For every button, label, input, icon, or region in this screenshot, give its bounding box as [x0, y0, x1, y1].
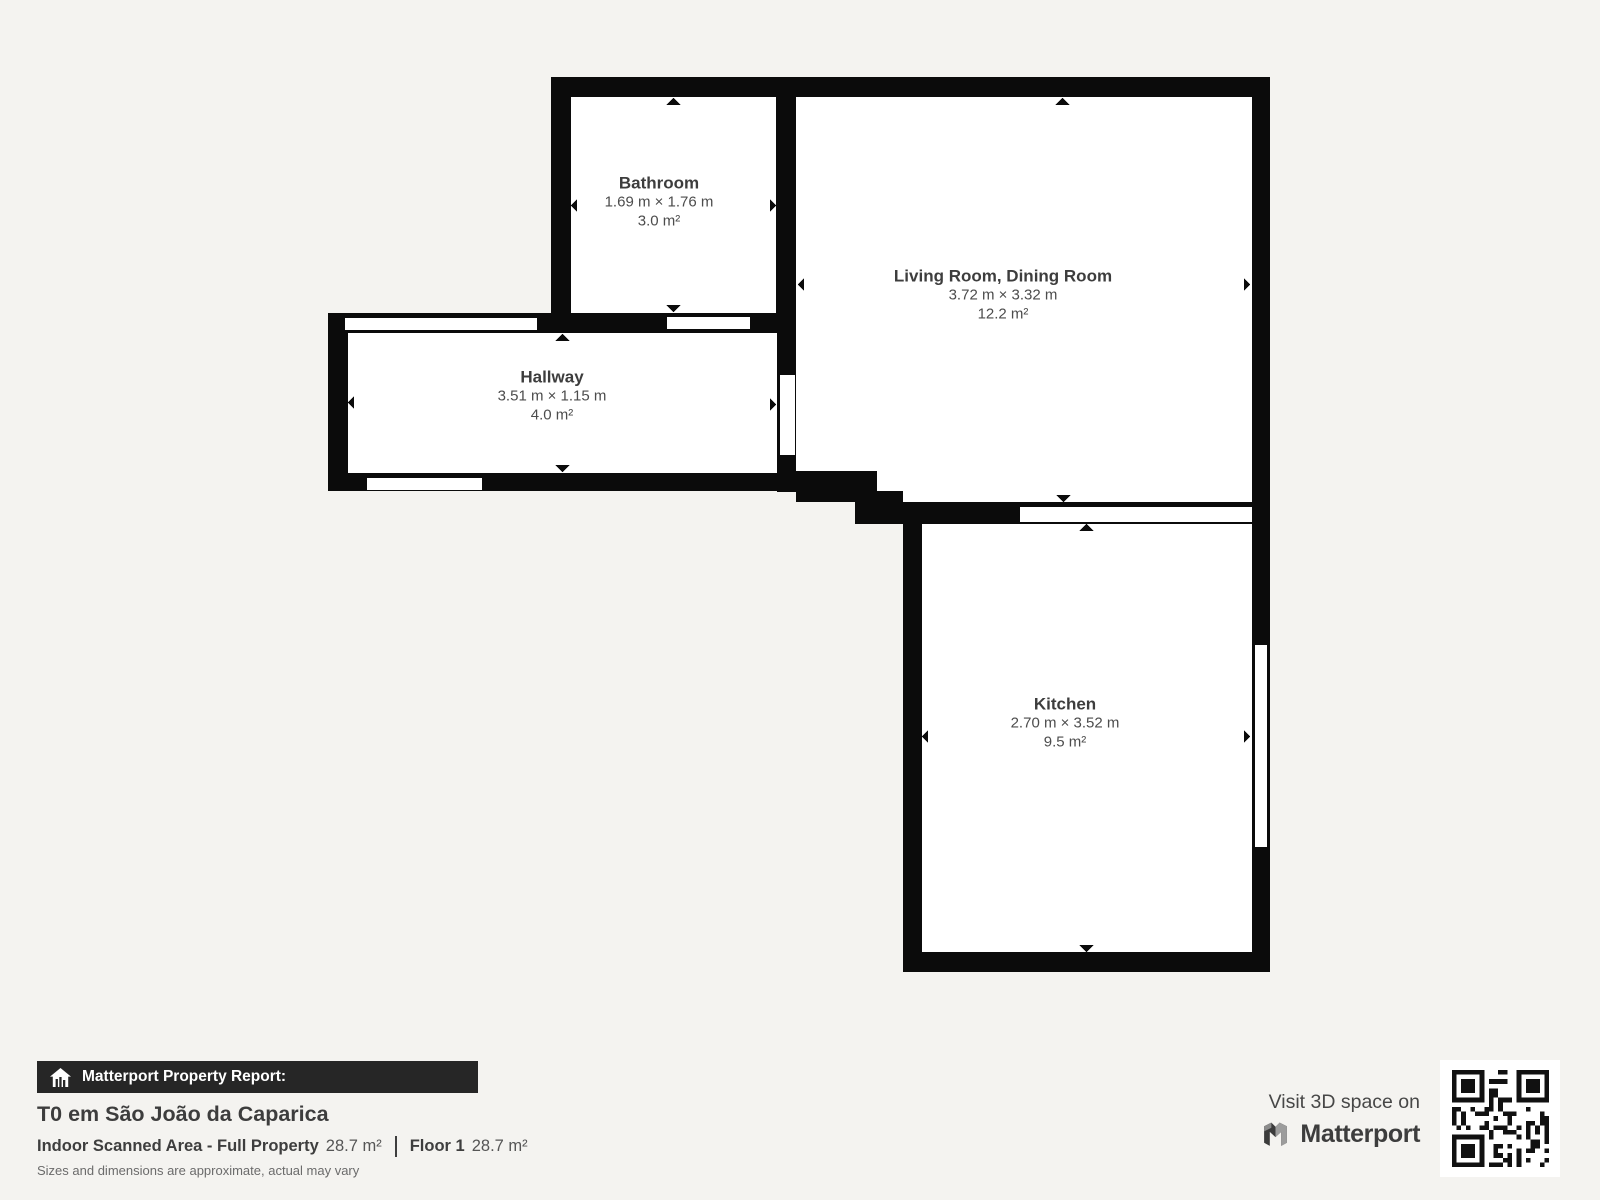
wall-kitchen-bottom	[903, 952, 1270, 972]
floor-value: 28.7 m²	[472, 1137, 528, 1156]
wall-top	[551, 77, 1270, 97]
room-floors	[348, 97, 1252, 952]
room-area: 3.0 m²	[605, 212, 714, 231]
kitchen-label: Kitchen 2.70 m × 3.52 m 9.5 m²	[1011, 695, 1120, 752]
room-name: Bathroom	[605, 174, 714, 193]
house-chart-icon	[50, 1068, 71, 1087]
room-dimensions: 2.70 m × 3.52 m	[1011, 714, 1120, 733]
floor-label: Floor 1	[410, 1137, 465, 1156]
matterport-wordmark: Matterport	[1300, 1120, 1420, 1149]
opening-hallway-bottom	[367, 478, 482, 490]
room-dimensions: 3.51 m × 1.15 m	[498, 387, 607, 406]
room-name: Hallway	[498, 368, 607, 387]
wall-kitchen-left	[903, 524, 922, 972]
matterport-logo-row: Matterport	[1261, 1120, 1420, 1149]
room-name: Kitchen	[1011, 695, 1120, 714]
report-badge-bar: Matterport Property Report:	[37, 1061, 478, 1093]
opening-living-kitchen	[1020, 507, 1252, 522]
opening-kitchen-window	[1255, 645, 1267, 847]
visit-3d-text: Visit 3D space on	[1261, 1091, 1420, 1114]
disclaimer-text: Sizes and dimensions are approximate, ac…	[37, 1163, 359, 1178]
bathroom-label: Bathroom 1.69 m × 1.76 m 3.0 m²	[605, 174, 714, 231]
floor-plan-page: Bathroom 1.69 m × 1.76 m 3.0 m² Living R…	[0, 0, 1600, 1200]
hallway-label: Hallway 3.51 m × 1.15 m 4.0 m²	[498, 368, 607, 425]
floor-plan-svg	[0, 0, 1600, 1200]
living-room-label: Living Room, Dining Room 3.72 m × 3.32 m…	[894, 267, 1112, 324]
room-dimensions: 3.72 m × 3.32 m	[894, 286, 1112, 305]
area-stats: Indoor Scanned Area - Full Property 28.7…	[37, 1136, 528, 1157]
room-dimensions: 1.69 m × 1.76 m	[605, 193, 714, 212]
indoor-area-label: Indoor Scanned Area - Full Property	[37, 1137, 319, 1156]
matterport-m-icon	[1261, 1120, 1290, 1149]
wall-hallway-left	[328, 313, 348, 491]
room-name: Living Room, Dining Room	[894, 267, 1112, 286]
wall-bathroom-left	[551, 97, 571, 333]
qr-code-pattern	[1452, 1070, 1549, 1167]
property-title: T0 em São João da Caparica	[37, 1102, 329, 1127]
stats-divider	[395, 1136, 397, 1157]
report-badge-text: Matterport Property Report:	[82, 1068, 286, 1086]
qr-code	[1440, 1060, 1560, 1177]
opening-hallway-top	[345, 318, 537, 330]
indoor-area-value: 28.7 m²	[326, 1137, 382, 1156]
room-area: 9.5 m²	[1011, 733, 1120, 752]
room-area: 12.2 m²	[894, 305, 1112, 324]
opening-bathroom-door	[667, 317, 750, 329]
wall-bathroom-living	[776, 97, 796, 333]
room-area: 4.0 m²	[498, 406, 607, 425]
opening-hallway-living-door	[780, 375, 795, 455]
branding-block: Visit 3D space on Matterport	[1261, 1091, 1420, 1149]
